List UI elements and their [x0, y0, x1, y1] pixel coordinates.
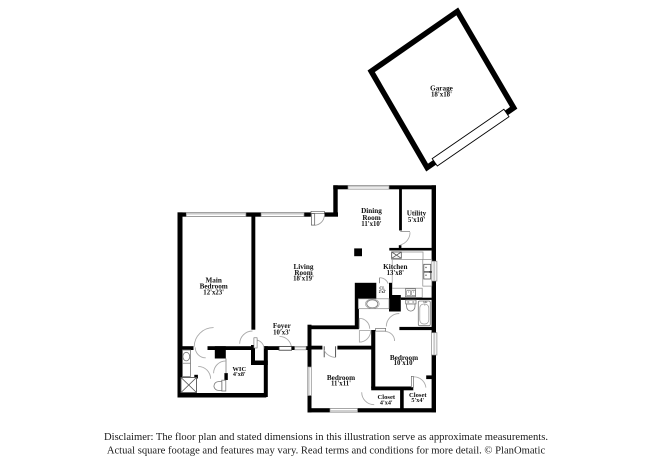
svg-text:Disclaimer: The floor plan and: Disclaimer: The floor plan and stated di… [104, 432, 548, 443]
svg-text:Actual square footage and feat: Actual square footage and features may v… [107, 446, 546, 457]
svg-text:4'x4': 4'x4' [380, 399, 393, 406]
svg-text:5'x4': 5'x4' [411, 397, 424, 404]
svg-text:11'x11': 11'x11' [331, 381, 351, 388]
svg-text:11'x10': 11'x10' [361, 221, 382, 228]
svg-text:12'x23': 12'x23' [203, 289, 224, 296]
svg-text:10'x3': 10'x3' [273, 330, 290, 337]
svg-text:13'x8': 13'x8' [387, 270, 404, 277]
svg-text:18'x19': 18'x19' [293, 276, 314, 283]
svg-text:5'x10': 5'x10' [408, 217, 425, 224]
svg-text:10'x10': 10'x10' [394, 360, 415, 367]
svg-text:18'x18': 18'x18' [431, 92, 452, 99]
svg-text:4'x8': 4'x8' [233, 371, 246, 378]
svg-text:2'x2': 2'x2' [379, 290, 386, 294]
